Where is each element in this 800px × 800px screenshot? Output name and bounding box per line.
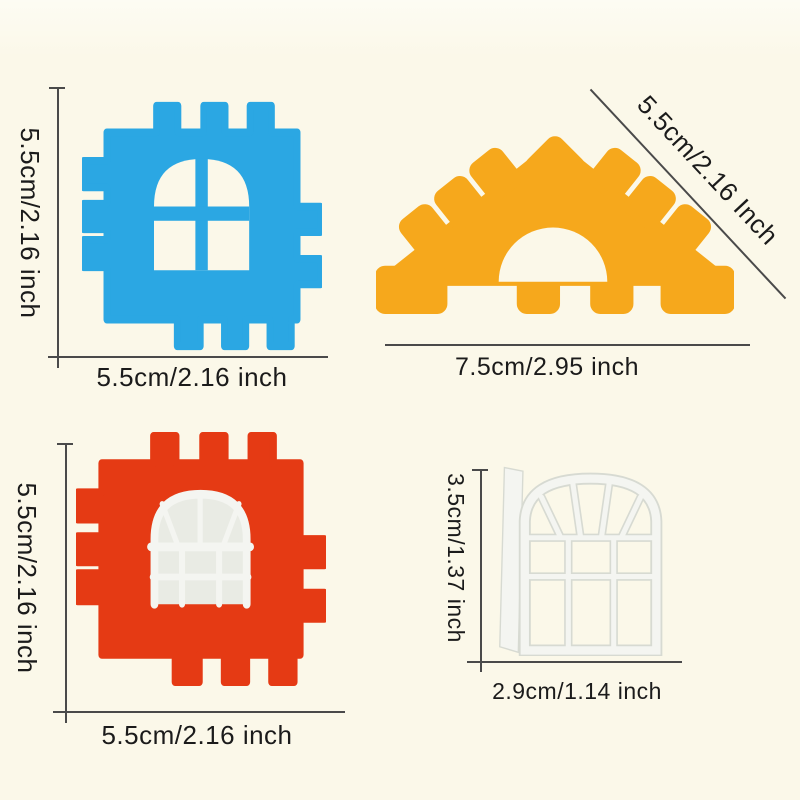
triangle-width-dimension-line <box>385 344 750 346</box>
blue-waffle-block-figure <box>82 100 322 352</box>
red-waffle-block-figure <box>76 430 326 688</box>
red-width-label: 5.5cm/2.16 inch <box>67 720 327 750</box>
blue-height-dimension-line <box>57 88 59 368</box>
blue-height-label: 5.5cm/2.16 inch <box>15 113 45 333</box>
red-height-label: 5.5cm/2.16 inch <box>12 468 42 688</box>
window-height-line-top-tick <box>472 469 488 471</box>
white-window-frame-figure <box>497 462 673 656</box>
window-mullions <box>525 484 657 650</box>
blue-height-line-top-tick <box>49 87 65 89</box>
blue-width-label: 5.5cm/2.16 inch <box>62 362 322 392</box>
blue-width-dimension-line <box>48 356 328 358</box>
size-chart-diagram: 5.5cm/2.16 inch 5.5cm/2.16 inch 5.5cm/2.… <box>0 0 800 800</box>
red-width-dimension-line <box>53 711 345 713</box>
window-height-label: 3.5cm/1.37 inch <box>441 463 471 653</box>
blue-width-line-left-tick <box>57 346 59 368</box>
triangle-body <box>378 136 732 311</box>
window-width-dimension-line <box>467 661 682 663</box>
window-height-dimension-line <box>480 470 482 672</box>
triangle-width-label: 7.5cm/2.95 inch <box>417 352 677 382</box>
red-height-line-top-tick <box>57 443 73 445</box>
red-height-dimension-line <box>65 444 67 722</box>
window-width-label: 2.9cm/1.14 inch <box>447 676 707 706</box>
